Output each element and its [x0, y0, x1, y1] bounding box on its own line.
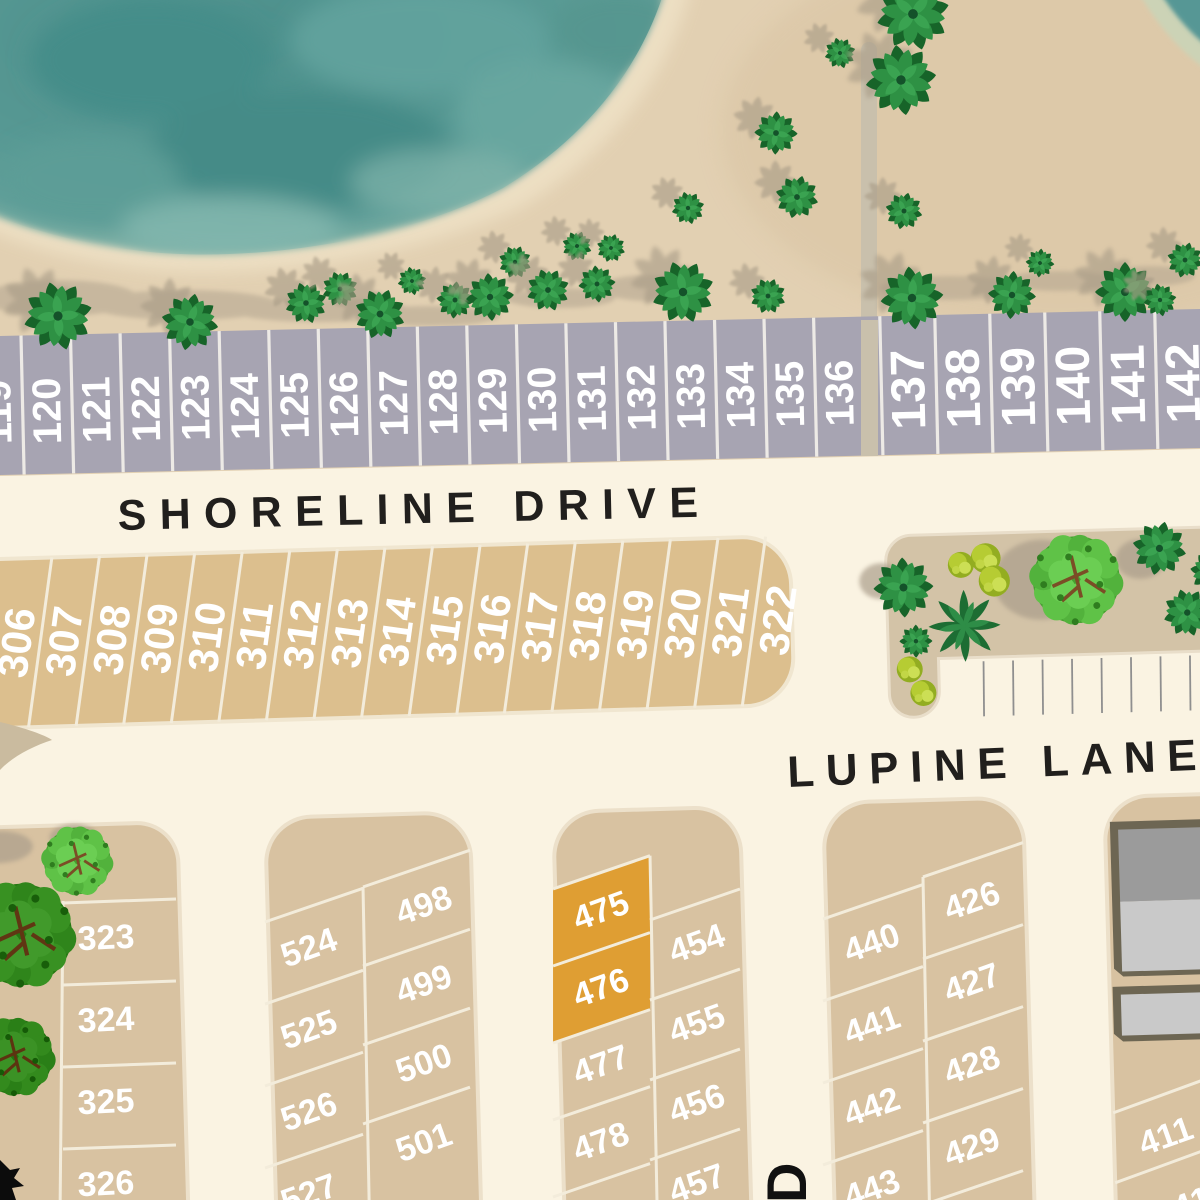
svg-text:326: 326	[77, 1164, 135, 1200]
svg-text:136: 136	[817, 359, 862, 427]
svg-text:325: 325	[77, 1082, 135, 1123]
svg-text:129: 129	[471, 367, 516, 435]
svg-text:D: D	[755, 1163, 818, 1200]
svg-text:124: 124	[223, 372, 269, 440]
svg-text:323: 323	[77, 918, 135, 959]
svg-text:119: 119	[0, 379, 21, 445]
svg-text:142: 142	[1156, 343, 1200, 424]
svg-text:128: 128	[421, 368, 466, 436]
svg-text:125: 125	[272, 372, 317, 440]
svg-text:138: 138	[937, 348, 992, 429]
svg-text:127: 127	[371, 369, 416, 437]
svg-text:132: 132	[619, 364, 664, 432]
svg-text:122: 122	[124, 375, 169, 443]
svg-text:123: 123	[173, 374, 218, 442]
svg-text:120: 120	[25, 377, 70, 445]
svg-text:130: 130	[520, 366, 565, 434]
svg-text:324: 324	[77, 1000, 136, 1041]
svg-text:126: 126	[322, 370, 367, 438]
svg-text:131: 131	[570, 365, 615, 433]
svg-text:139: 139	[992, 346, 1047, 427]
svg-text:141: 141	[1101, 344, 1156, 425]
svg-text:SHORELINE DRIVE: SHORELINE DRIVE	[117, 479, 712, 540]
svg-text:134: 134	[718, 361, 764, 429]
svg-text:322: 322	[750, 582, 806, 658]
svg-text:121: 121	[74, 376, 119, 444]
svg-text:137: 137	[882, 349, 937, 430]
svg-text:LUPINE LANE: LUPINE LANE	[786, 730, 1200, 797]
svg-text:140: 140	[1046, 345, 1101, 426]
svg-text:135: 135	[768, 360, 813, 428]
svg-text:133: 133	[669, 363, 714, 431]
